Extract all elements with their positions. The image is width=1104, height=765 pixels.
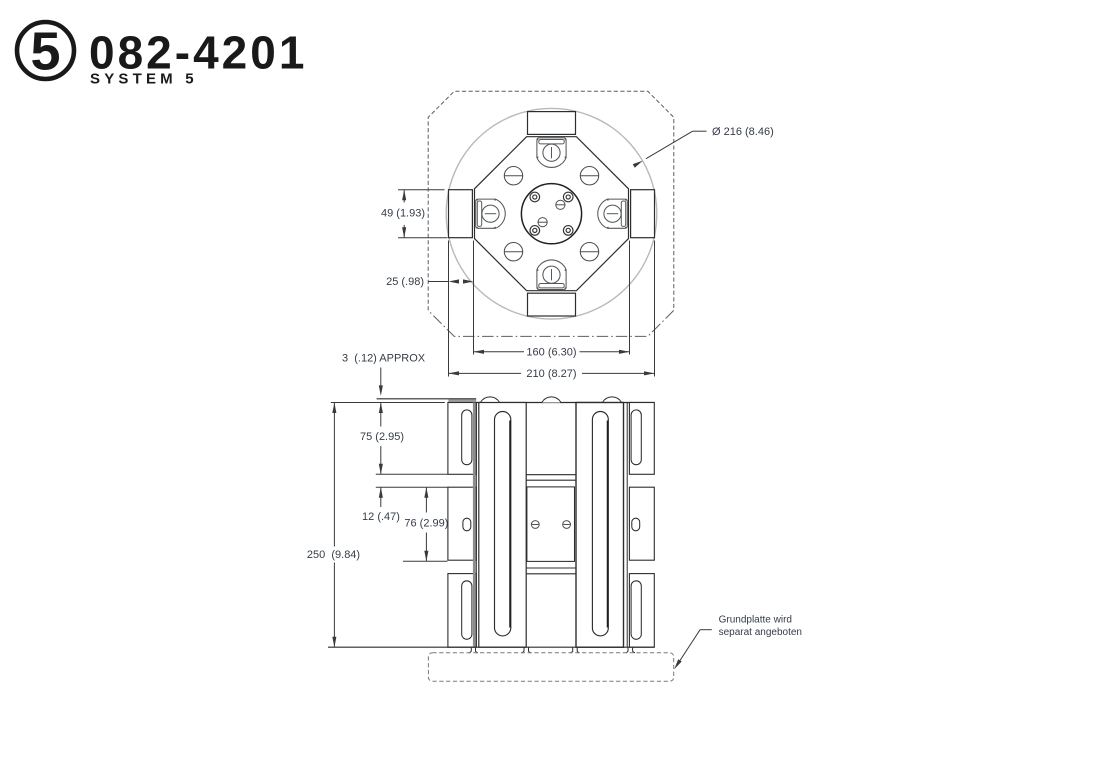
svg-text:12 (.47): 12 (.47) bbox=[362, 511, 400, 523]
svg-text:Ø 216 (8.46): Ø 216 (8.46) bbox=[712, 126, 774, 138]
svg-text:210 (8.27): 210 (8.27) bbox=[526, 368, 576, 380]
svg-text:3 (.12) APPROX: 3 (.12) APPROX bbox=[342, 352, 426, 364]
svg-text:160 (6.30): 160 (6.30) bbox=[526, 346, 576, 358]
svg-text:5: 5 bbox=[30, 22, 60, 82]
svg-text:250 (9.84): 250 (9.84) bbox=[307, 549, 360, 561]
svg-text:separat angeboten: separat angeboten bbox=[719, 627, 802, 638]
svg-text:25 (.98): 25 (.98) bbox=[386, 276, 424, 288]
svg-text:76 (2.99): 76 (2.99) bbox=[404, 517, 448, 529]
svg-text:Grundplatte wird: Grundplatte wird bbox=[719, 615, 792, 626]
svg-text:75 (2.95): 75 (2.95) bbox=[360, 431, 404, 443]
svg-text:SYSTEM 5: SYSTEM 5 bbox=[90, 70, 198, 87]
svg-text:49 (1.93): 49 (1.93) bbox=[381, 207, 425, 219]
